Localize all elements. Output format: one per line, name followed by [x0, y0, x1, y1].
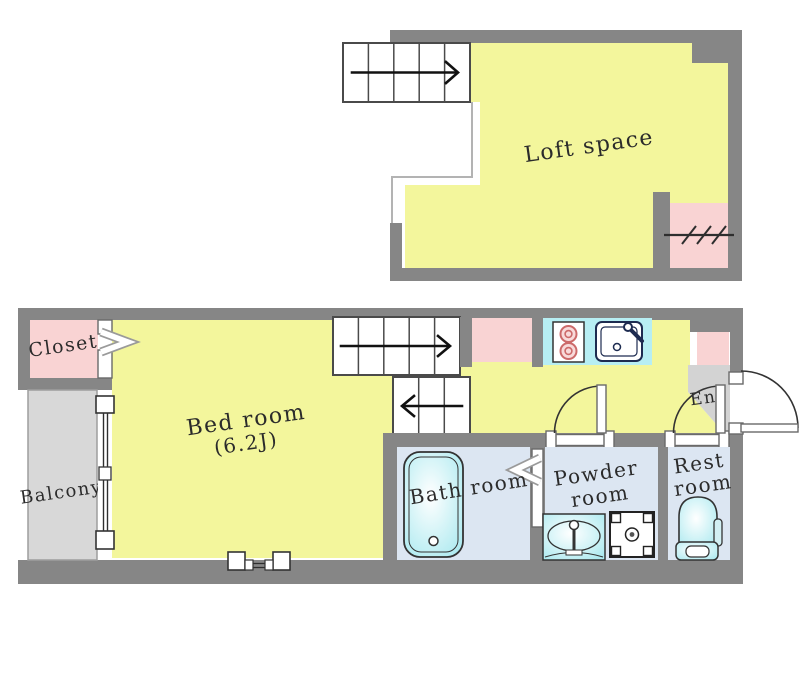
- washbasin-icon: [543, 514, 605, 560]
- loft-wall-top-right-notch: [692, 43, 730, 63]
- entrance-shoe-cabinet: [697, 332, 729, 365]
- refrigerator-space: [472, 318, 532, 362]
- loft-stairs-icon: [343, 43, 470, 102]
- wall-bath-left: [383, 447, 397, 560]
- entrance-door-icon: [729, 371, 798, 434]
- wall-below-closet: [18, 378, 98, 390]
- loft-wall-top: [390, 30, 742, 43]
- stairs-lower-flight-icon: [393, 377, 470, 435]
- washing-machine-icon: [610, 512, 654, 557]
- wall-right-upper: [730, 308, 743, 372]
- main-floor-plan: Closet Balcony Bed room (6.2J): [18, 308, 798, 584]
- wall-powder-rest-divider: [658, 447, 668, 560]
- wall-bottom: [18, 560, 743, 584]
- loft-wall-left-stub: [390, 223, 402, 268]
- loft-ladder-wall-stub: [653, 192, 670, 268]
- kitchen-wall-stub-left: [460, 317, 472, 367]
- stove-icon: [553, 322, 584, 362]
- balcony-floor: [28, 390, 97, 560]
- floor-plan-page: Loft space Closet Balcony: [0, 0, 800, 696]
- floor-plan-drawing: Loft space Closet Balcony: [0, 0, 800, 696]
- toilet-icon: [676, 497, 722, 560]
- loft-wall-bottom: [390, 268, 742, 281]
- wall-right-lower: [730, 425, 743, 584]
- kitchen-sink-icon: [596, 322, 642, 361]
- balcony-window-icon: [96, 390, 114, 560]
- kitchen-wall-stub-right: [532, 318, 543, 367]
- loft-wall-right: [728, 30, 742, 281]
- loft-floor-plan: Loft space: [343, 30, 742, 281]
- stairs-upper-flight-icon: [333, 317, 460, 375]
